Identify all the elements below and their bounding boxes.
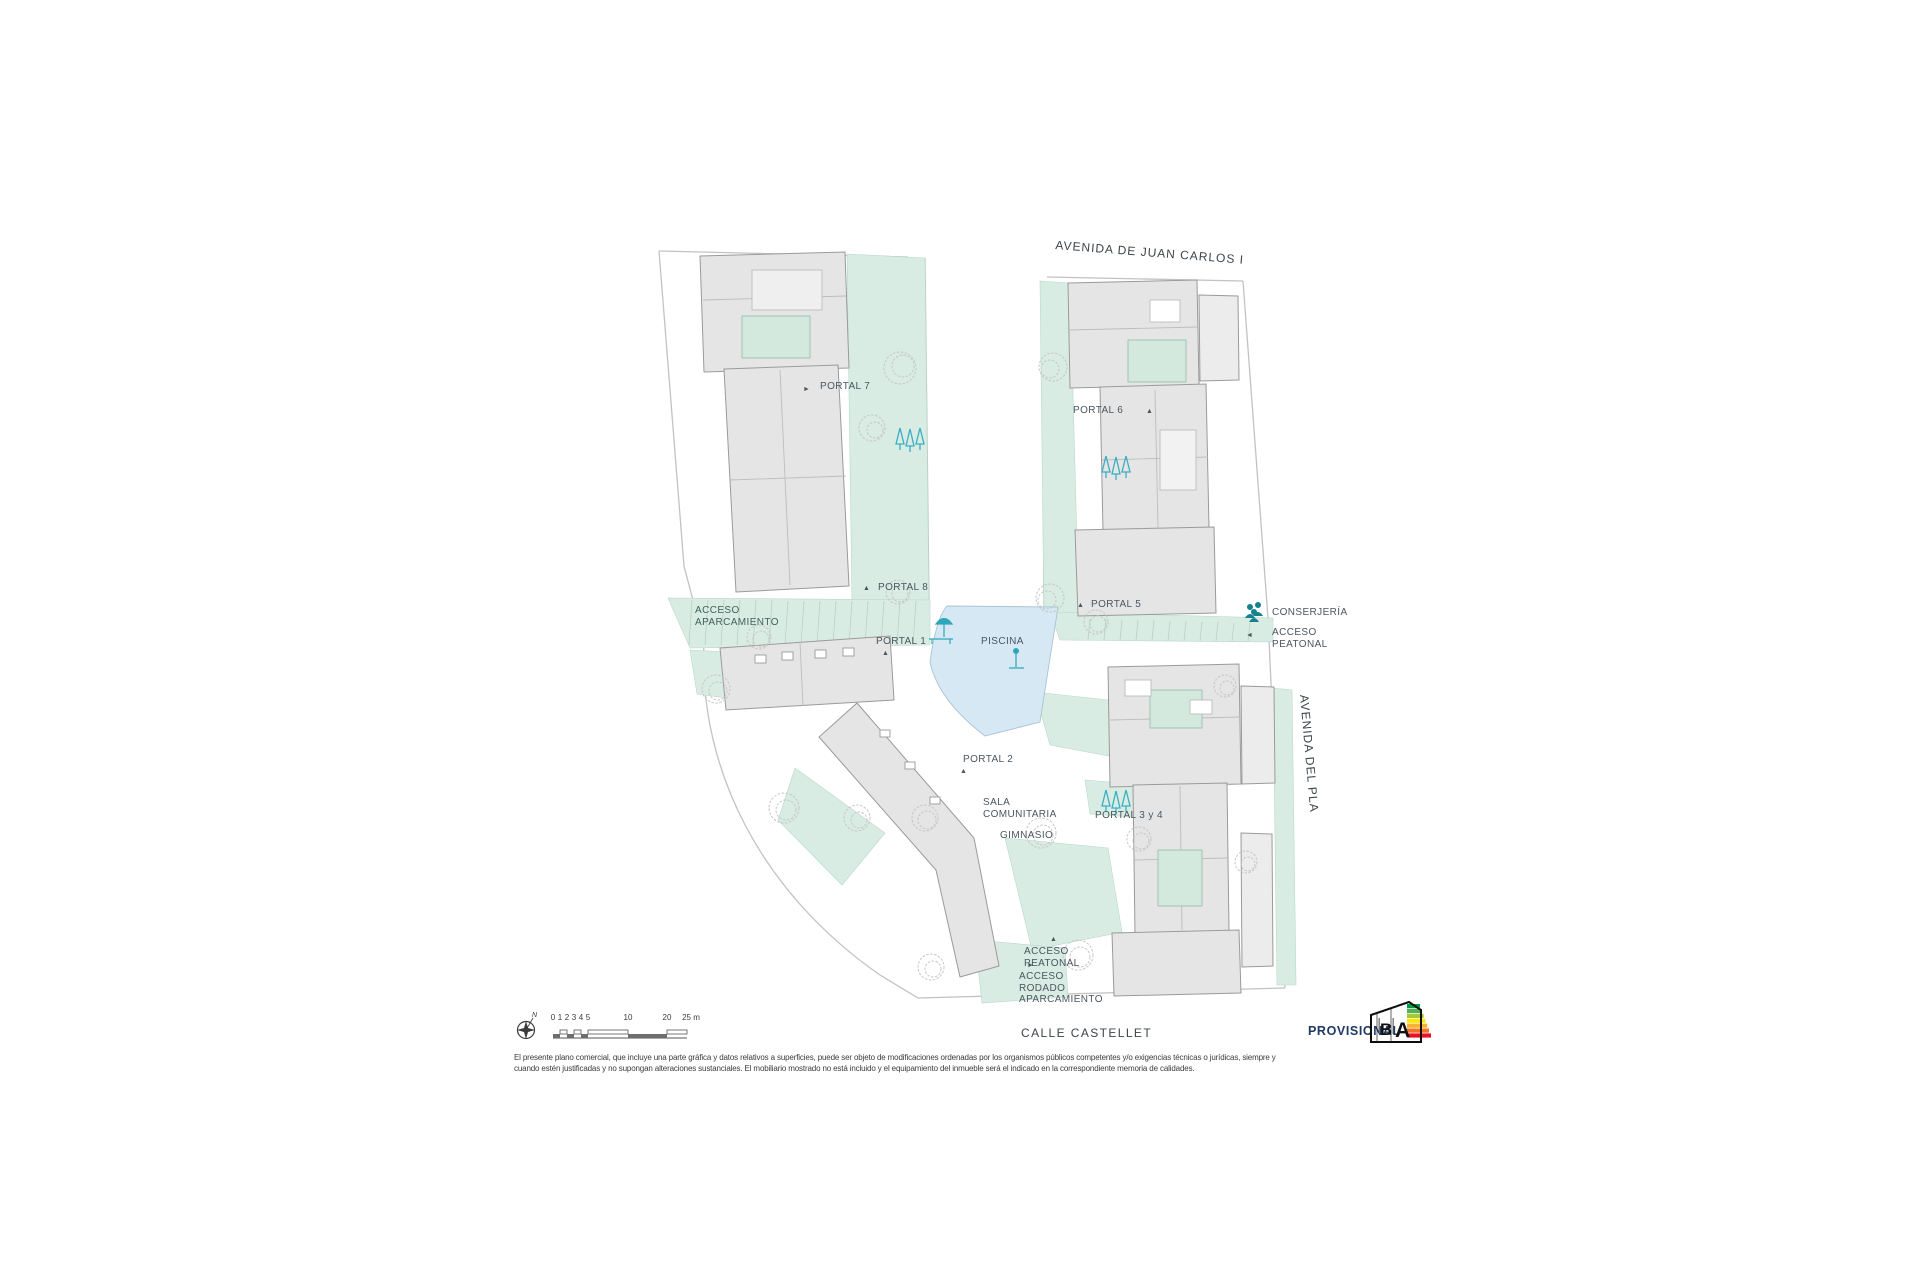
street-label-calle-castellet: CALLE CASTELLET [1021,1026,1152,1040]
portal2-arrow-icon: ▲ [960,768,967,775]
portal8-arrow-icon: ▲ [863,585,870,592]
north-compass-icon: N [510,1006,550,1046]
portal34-label: PORTAL 3 y 4 [1095,810,1163,822]
scale-tick-25m: 25 m [682,1013,700,1022]
scale-tick-1: 1 [558,1013,562,1022]
sala-comunitaria-label: SALA COMUNITARIA [983,797,1057,820]
conserjeria-label: CONSERJERÍA [1272,607,1348,619]
scale-tick-4: 4 [579,1013,583,1022]
scale-tick-2: 2 [565,1013,569,1022]
disclaimer-text: El presente plano comercial, que incluye… [514,1052,1276,1074]
north-letter: N [532,1012,538,1019]
portal6-label: PORTAL 6 [1073,405,1123,417]
portal2-label: PORTAL 2 [963,754,1013,766]
disclaimer-line-1: El presente plano comercial, que incluye… [514,1052,1276,1063]
portal5-label: PORTAL 5 [1091,599,1141,611]
scale-bar [553,1028,693,1042]
piscina-label: PISCINA [981,636,1024,648]
building-portal-5-6 [1068,280,1239,616]
scale-tick-0: 0 [551,1013,555,1022]
portal6-arrow-icon: ▲ [1146,408,1153,415]
scale-tick-20: 20 [663,1013,672,1022]
site-plan-drawing [0,0,1920,1280]
acceso-peatonal-arrow-icon: ◄ [1246,632,1253,639]
portal5-arrow-icon: ▲ [1077,602,1084,609]
scale-tick-3: 3 [572,1013,576,1022]
acceso-rodado-arrow-icon: ► [1027,962,1034,969]
acceso-peatonal-label: ACCESO PEATONAL [1272,627,1328,650]
scale-tick-5: 5 [586,1013,590,1022]
energy-letter-a: A [1395,1019,1410,1042]
gimnasio-label: GIMNASIO [1000,830,1053,842]
portal8-label: PORTAL 8 [878,582,928,594]
energy-rating-icon: B A [1369,1000,1433,1046]
portal7-arrow-icon: ► [803,386,810,393]
energy-letter-b: B [1380,1020,1392,1039]
portal7-label: PORTAL 7 [820,381,870,393]
portal1-arrow-icon: ▲ [882,650,889,657]
acceso-aparcamiento-label: ACCESO APARCAMIENTO [695,605,779,628]
acceso-peatonal-sur-arrow-icon: ▲ [1050,936,1057,943]
swimming-pool [930,606,1058,736]
acceso-rodado-label: ACCESO RODADO APARCAMIENTO [1019,971,1103,1006]
site-plan-page: AVENIDA DE JUAN CARLOS I AVENIDA DEL PLA… [0,0,1920,1280]
disclaimer-line-2: cuando estén justificadas y no supongan … [514,1063,1276,1074]
scale-tick-10: 10 [624,1013,633,1022]
portal1-label: PORTAL 1 [876,636,926,648]
